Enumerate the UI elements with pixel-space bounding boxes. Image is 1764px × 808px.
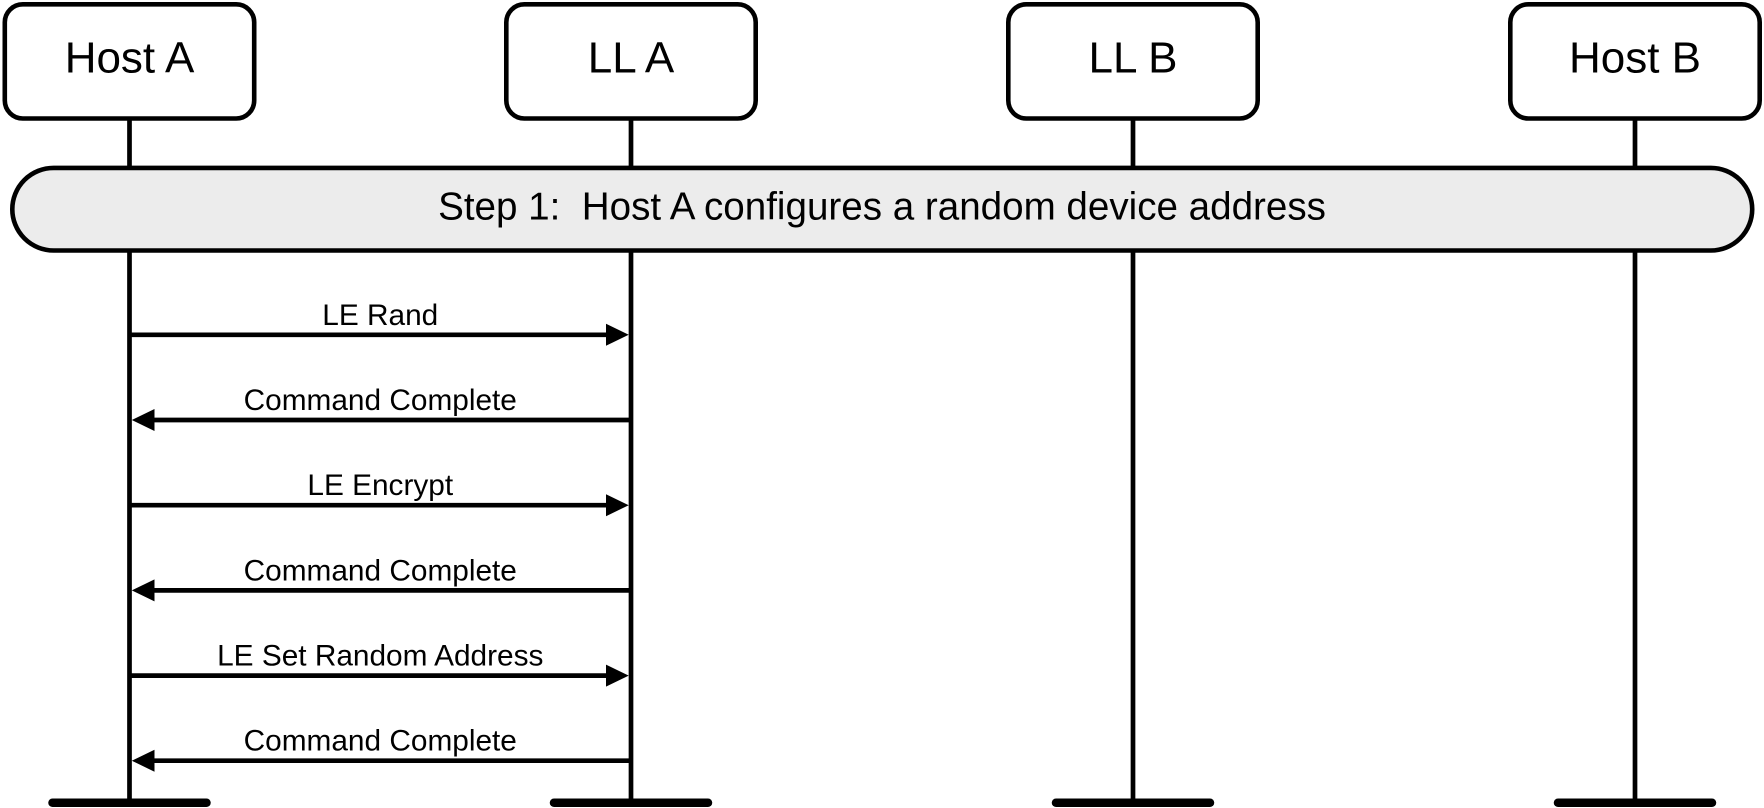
svg-text:Command Complete: Command Complete [244,725,517,758]
svg-text:LL A: LL A [588,34,675,83]
svg-text:LE Set Random Address: LE Set Random Address [217,640,543,673]
svg-text:Host B: Host B [1569,34,1701,83]
svg-text:LE Rand: LE Rand [322,299,438,332]
svg-text:Host A: Host A [65,34,195,83]
svg-text:Command Complete: Command Complete [244,554,517,587]
svg-text:LL B: LL B [1089,34,1178,83]
svg-text:Step 1: Host A configures a r: Step 1: Host A configures a random devic… [438,186,1326,229]
svg-text:Command Complete: Command Complete [244,384,517,417]
svg-text:LE Encrypt: LE Encrypt [307,469,453,502]
